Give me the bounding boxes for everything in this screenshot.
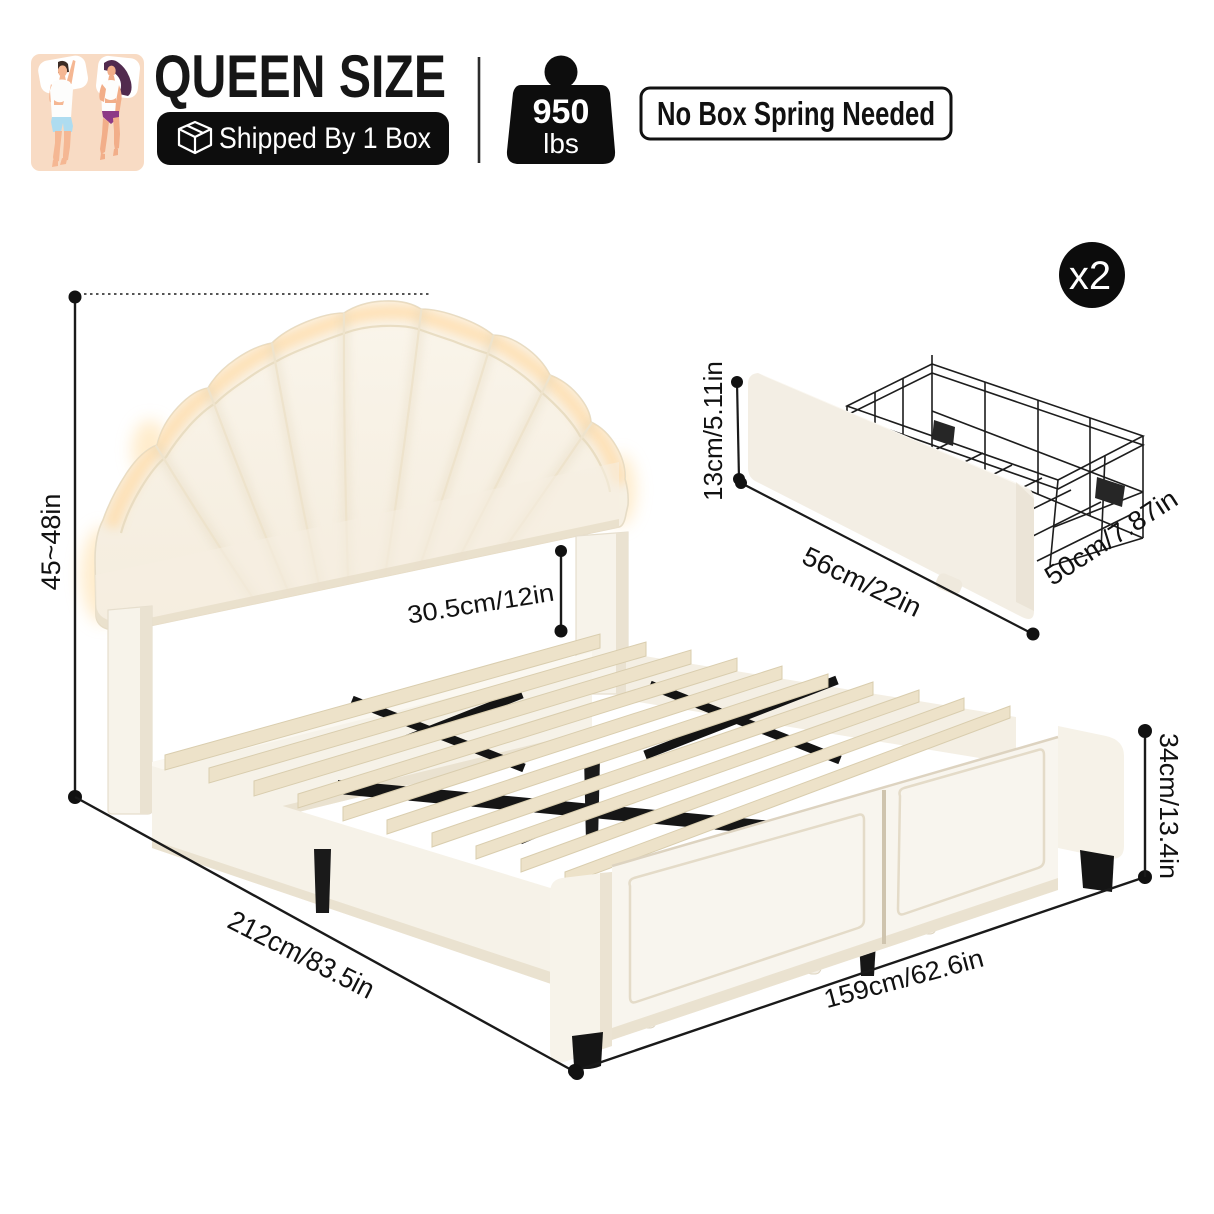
svg-text:13cm/5.11in: 13cm/5.11in	[698, 361, 728, 501]
svg-text:212cm/83.5in: 212cm/83.5in	[223, 904, 380, 1004]
svg-text:x2: x2	[1069, 254, 1111, 298]
svg-text:45~48in: 45~48in	[36, 494, 66, 591]
svg-text:lbs: lbs	[543, 128, 579, 159]
svg-text:34cm/13.4in: 34cm/13.4in	[1154, 733, 1184, 879]
svg-text:30.5cm/12in: 30.5cm/12in	[405, 579, 556, 630]
svg-text:Shipped By 1 Box: Shipped By 1 Box	[219, 122, 431, 155]
svg-text:No Box Spring Needed: No Box Spring Needed	[657, 95, 935, 132]
svg-text:QUEEN SIZE: QUEEN SIZE	[154, 43, 446, 110]
svg-text:950: 950	[533, 93, 590, 131]
